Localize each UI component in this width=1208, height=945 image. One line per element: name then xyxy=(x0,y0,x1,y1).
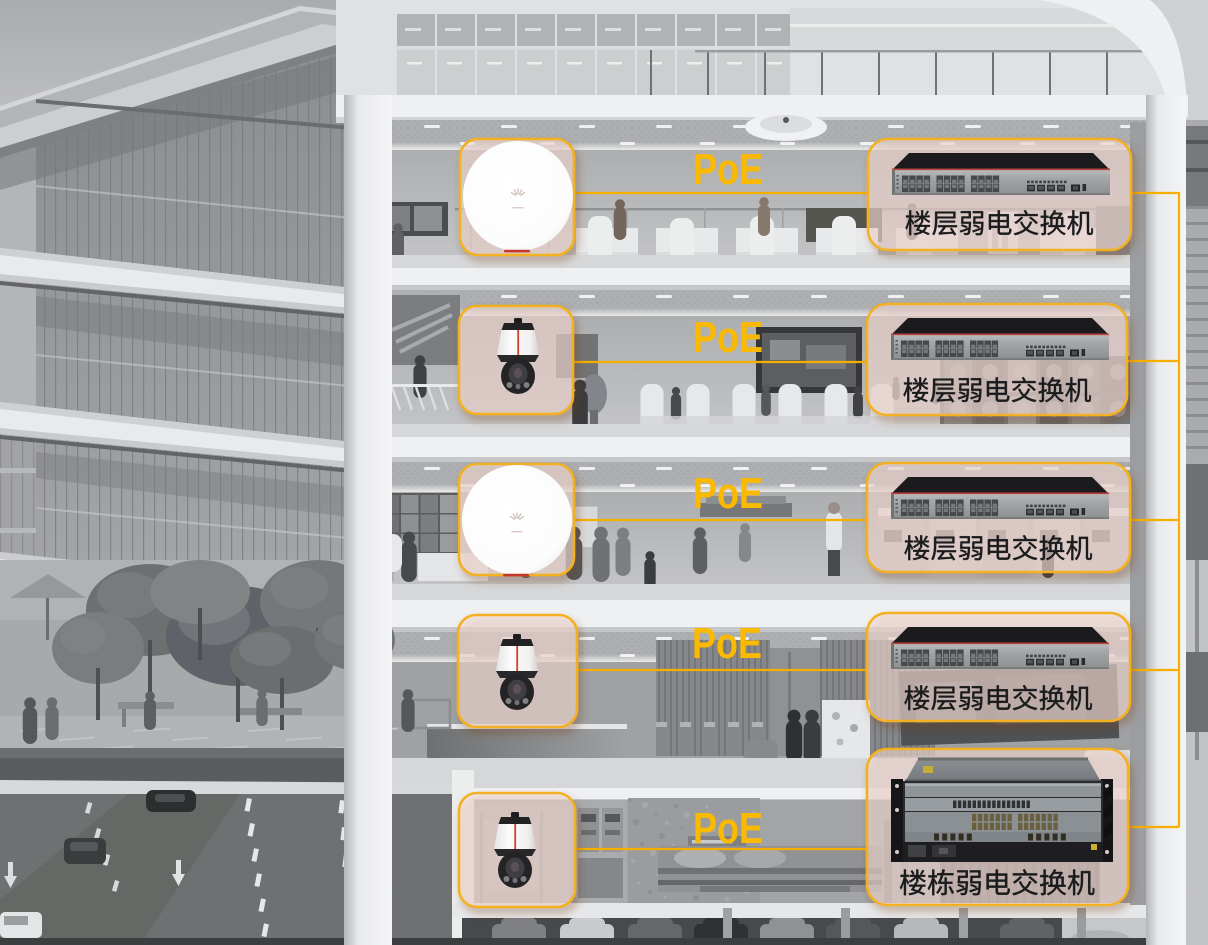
svg-text:PoE: PoE xyxy=(692,619,762,668)
svg-text:PoE: PoE xyxy=(693,313,763,362)
svg-text:PoE: PoE xyxy=(693,804,763,853)
svg-text:PoE: PoE xyxy=(693,469,763,518)
svg-text:PoE: PoE xyxy=(693,145,763,194)
